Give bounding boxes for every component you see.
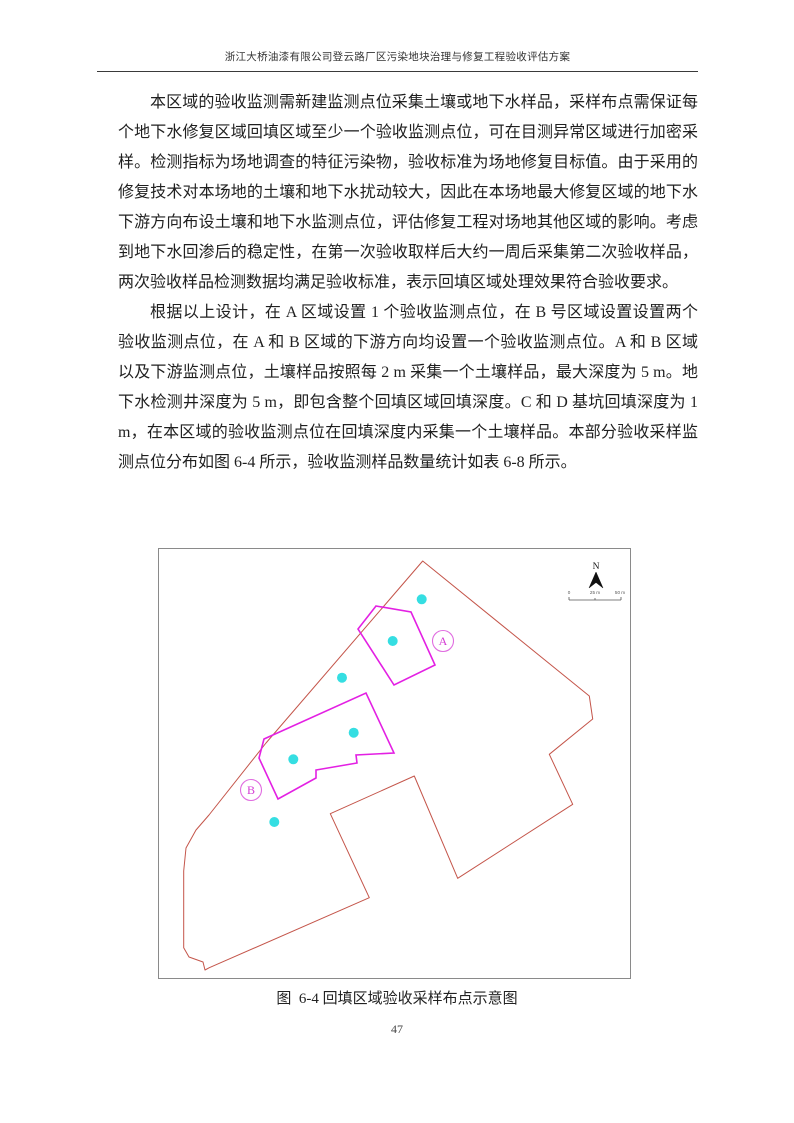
sample-point [349, 728, 359, 738]
region-b-letter: B [247, 783, 255, 797]
region-b-label: B [241, 780, 262, 801]
page-number: 47 [0, 1022, 794, 1037]
document-page: 浙江大桥油漆有限公司登云路厂区污染地块治理与修复工程验收评估方案 本区域的验收监… [0, 0, 794, 1123]
remediation-area-a-polygon [358, 606, 435, 685]
page-header-title: 浙江大桥油漆有限公司登云路厂区污染地块治理与修复工程验收评估方案 [97, 49, 698, 64]
sample-point [388, 636, 398, 646]
sample-point [269, 817, 279, 827]
scale-max-label: 50 m [615, 590, 625, 595]
region-a-letter: A [439, 634, 448, 648]
site-boundary-outline [184, 561, 593, 970]
scale-bar: 0 25 m 50 m [568, 590, 626, 600]
sample-point [337, 673, 347, 683]
north-arrow-icon: N [589, 562, 603, 588]
header-rule [97, 71, 698, 72]
scale-zero-label: 0 [568, 590, 571, 595]
paragraph-1: 本区域的验收监测需新建监测点位采集土壤或地下水样品，采样布点需保证每个地下水修复… [118, 88, 698, 298]
scale-mid-label: 25 m [590, 590, 600, 595]
site-map: A B N 0 25 m 50 m [159, 549, 630, 978]
body-text: 本区域的验收监测需新建监测点位采集土壤或地下水样品，采样布点需保证每个地下水修复… [118, 88, 698, 478]
region-a-label: A [433, 631, 454, 652]
remediation-area-b-polygon [259, 693, 394, 799]
figure-caption: 图 6-4 回填区域验收采样布点示意图 [0, 987, 794, 1008]
sample-points-group [269, 594, 426, 827]
sample-point [417, 594, 427, 604]
paragraph-2: 根据以上设计，在 A 区域设置 1 个验收监测点位，在 B 号区域设置设置两个验… [118, 298, 698, 478]
figure-frame: A B N 0 25 m 50 m [158, 548, 631, 979]
north-label: N [593, 562, 600, 572]
sample-point [288, 754, 298, 764]
